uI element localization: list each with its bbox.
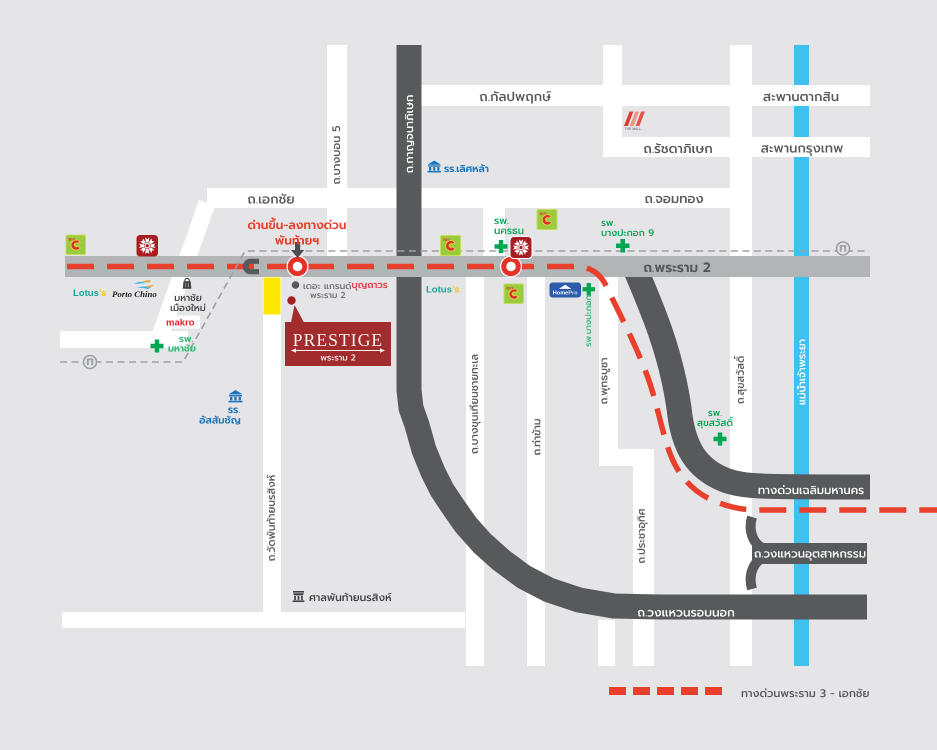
svg-text:HomePro: HomePro <box>553 290 578 296</box>
svg-text:PRESTIGE: PRESTIGE <box>293 330 383 350</box>
svg-text:makro: makro <box>166 318 195 329</box>
svg-text:Lotus’s: Lotus’s <box>73 288 106 299</box>
svg-text:Lotus’s: Lotus’s <box>426 285 459 296</box>
svg-text:THE MALL: THE MALL <box>625 127 642 131</box>
svg-text:Porto Chino: Porto Chino <box>112 289 157 299</box>
